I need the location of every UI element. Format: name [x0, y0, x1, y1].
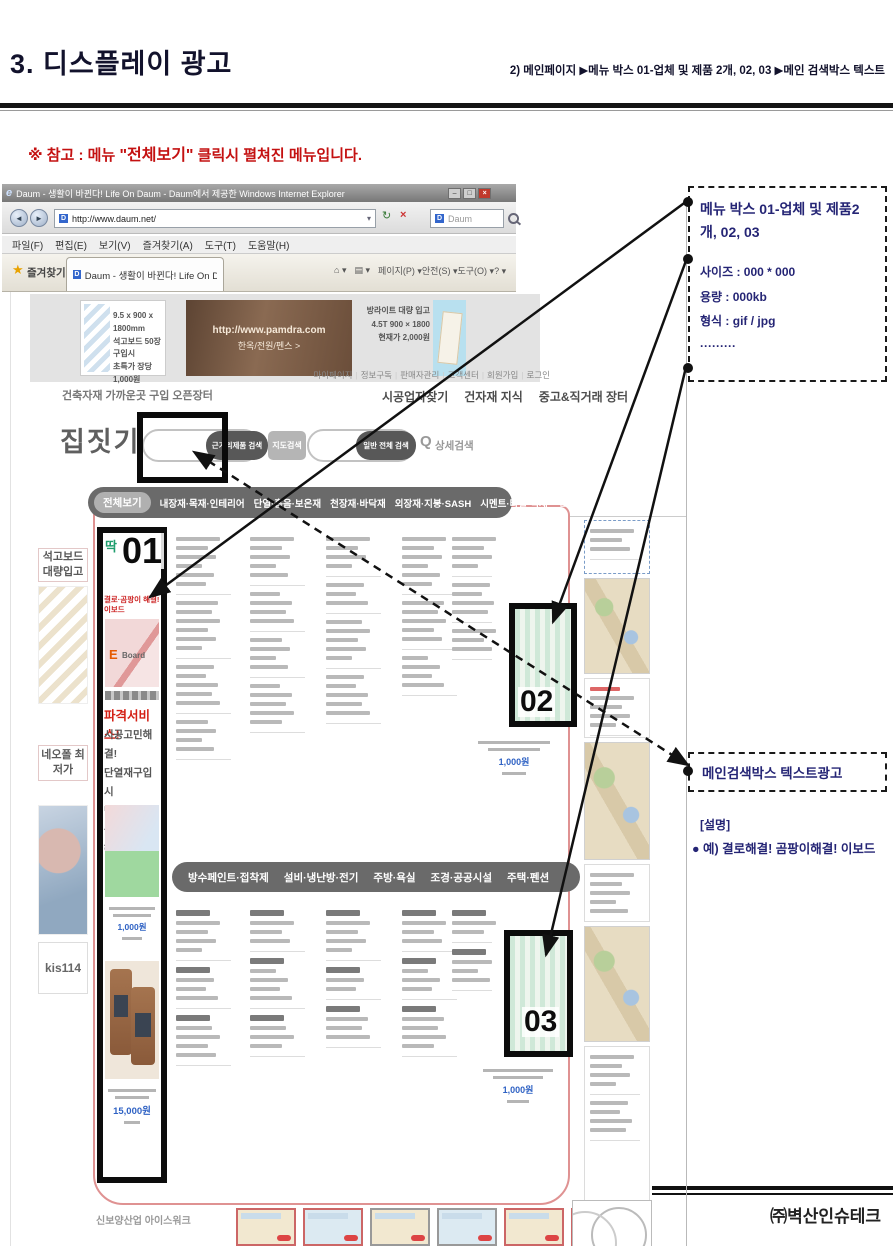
- menu-text-line: [402, 601, 444, 605]
- menu-text-line: [452, 592, 482, 596]
- minimize-button[interactable]: –: [448, 188, 461, 199]
- favorites-bar: ★ 즐겨찾기 D Daum - 생활이 바뀐다! Life On Daum ⌂ …: [2, 254, 516, 292]
- menu-text-line: [402, 958, 436, 964]
- magnifier-icon[interactable]: [508, 213, 519, 224]
- category-tab[interactable]: 전체보기: [94, 492, 151, 513]
- header-rule-thick: [0, 103, 893, 108]
- utility-link[interactable]: 고객센터: [448, 370, 479, 380]
- sticker-logo: 딱: [105, 536, 117, 555]
- window-title: Daum - 생활이 바뀐다! Life On Daum - Daum에서 제공…: [16, 187, 446, 200]
- menu-text-line: [402, 555, 442, 559]
- menu-text-line: [250, 573, 288, 577]
- column-divider: [176, 658, 231, 659]
- favorites-label[interactable]: 즐겨찾기: [27, 265, 66, 280]
- ad-slot-box-02: 02: [509, 603, 577, 727]
- menu-text-line: [590, 1128, 626, 1132]
- note-prefix: ※ 참고 : 메뉴: [28, 147, 119, 164]
- menu-text-line: [176, 930, 208, 934]
- menu-item[interactable]: 도구(T): [205, 237, 236, 252]
- forward-button[interactable]: ►: [30, 209, 48, 227]
- banner-ad-right-text[interactable]: 방라이트 대량 입고4.5T 900 × 1800현재가 2,000원: [360, 304, 430, 345]
- header-breadcrumb: 2) 메인페이지 ▶메뉴 박스 01-업체 및 제품 2개, 02, 03 ▶메…: [420, 62, 885, 78]
- reference-note: ※ 참고 : 메뉴 "전체보기" 클릭시 펼쳐진 메뉴입니다.: [28, 141, 362, 165]
- menu-text-line: [250, 910, 284, 916]
- menu-text-line: [590, 900, 616, 904]
- eboard-logo-image[interactable]: E Board: [105, 619, 159, 687]
- menu-text-line: [590, 1073, 630, 1077]
- command-item[interactable]: 페이지(P) ▾: [378, 266, 422, 276]
- menu-text-line: [326, 948, 352, 952]
- menu-text-line: [402, 910, 436, 916]
- stop-icon[interactable]: ×: [400, 209, 406, 221]
- category-tab[interactable]: 단열·흡음·보온재: [254, 496, 322, 510]
- menu-text-line: [250, 619, 294, 623]
- column-divider: [250, 585, 305, 586]
- category-tab[interactable]: 외장재·지붕·SASH: [395, 496, 471, 510]
- map-thumbnail-1[interactable]: [584, 578, 650, 674]
- tab-favicon: D: [73, 270, 81, 279]
- sidebar-ad-gypsum-image[interactable]: [38, 586, 88, 704]
- menu-text-line: [250, 665, 288, 669]
- column-divider: [326, 723, 381, 724]
- menu-text-line: [250, 1015, 284, 1021]
- banner-ad-text: 9.5 x 900 x 1800mm석고보드 50장 구입시초특가 장당 1,0…: [113, 310, 165, 387]
- menu-text-line: [590, 714, 630, 718]
- menu-text-line: [176, 674, 206, 678]
- menu-text-line: [590, 1082, 616, 1086]
- daum-search-icon: D: [435, 214, 444, 223]
- thumb-price-pill: [545, 1235, 559, 1241]
- map-search-button[interactable]: 지도검색: [268, 431, 306, 460]
- category-tab[interactable]: 주방·욕실: [373, 870, 415, 885]
- back-button[interactable]: ◄: [10, 209, 28, 227]
- annotation-box-menu: 메뉴 박스 01-업체 및 제품2개, 02, 03 사이즈 : 000 * 0…: [688, 186, 887, 382]
- sidebar-ad-gypsum[interactable]: 석고보드 대량입고: [38, 548, 88, 582]
- ad-slot-label-02: 02: [518, 687, 555, 717]
- nav-left-label: 건축자재 가까운곳 구입 오픈장터: [62, 387, 213, 403]
- menu-text-line: [176, 747, 214, 751]
- menu-text-line: [402, 637, 442, 641]
- menu-text-line: [176, 573, 214, 577]
- menu-text-line: [452, 601, 494, 605]
- menu-item[interactable]: 편집(E): [55, 237, 87, 252]
- ad-slot-box-03: 03: [504, 930, 573, 1057]
- nav-right-links: 시공업자찾기건자재 지식중고&직거래 장터: [382, 388, 628, 405]
- column-divider: [452, 990, 492, 991]
- product-price-2: 15,000원: [104, 1103, 160, 1117]
- menu-text-line: [452, 564, 478, 568]
- menu-text-line: [590, 909, 628, 913]
- menu-text-line: [326, 910, 360, 916]
- utility-link[interactable]: 마이페이지: [313, 370, 352, 380]
- bottom-ad-thumbnail[interactable]: [437, 1208, 497, 1246]
- column-divider: [452, 576, 492, 577]
- menu-text-line: [402, 674, 432, 678]
- menu-text-line: [402, 683, 444, 687]
- menu-text-line: [250, 656, 276, 660]
- product-image-1[interactable]: [105, 805, 159, 897]
- thumb-price-pill: [344, 1235, 358, 1241]
- category-tab[interactable]: 조경·공공시설: [431, 870, 492, 885]
- column-divider: [326, 1047, 381, 1048]
- utility-link[interactable]: 회원가입: [487, 370, 518, 380]
- menu-text-line: [590, 882, 622, 886]
- category-tab[interactable]: 설비·냉난방·전기: [284, 870, 359, 885]
- description-header: [설명]: [700, 816, 730, 833]
- menu-text-line: [176, 692, 212, 696]
- footer-rule-1: [652, 1186, 893, 1190]
- divider-strip: [105, 691, 159, 700]
- menu-text-line: [176, 996, 218, 1000]
- menu-text-line: [176, 628, 208, 632]
- thumb-title-bar: [509, 1213, 549, 1219]
- menu-text-line: [590, 891, 630, 895]
- bottom-ad-thumbnail[interactable]: [303, 1208, 363, 1246]
- ad-caption-03: 1,000원: [468, 1065, 568, 1107]
- right-column-text[interactable]: [584, 678, 650, 738]
- column-divider: [250, 732, 305, 733]
- menu-text-line: [250, 564, 276, 568]
- menu-item[interactable]: 보기(V): [99, 237, 131, 252]
- ad-slot-label-03: 03: [522, 1007, 559, 1037]
- menu-text-line: [250, 684, 280, 688]
- menu-text-line: [176, 939, 216, 943]
- menu-text-line: [326, 1026, 362, 1030]
- category-tab[interactable]: 방수페인트·접착제: [188, 870, 269, 885]
- sidebar-ad-neopol-image[interactable]: [38, 805, 88, 935]
- menu-text-line: [326, 675, 364, 679]
- menu-text-line: [326, 555, 366, 559]
- column-divider: [250, 1008, 305, 1009]
- menu-text-line: [176, 646, 202, 650]
- menu-text-line: [250, 939, 290, 943]
- menu-text-line: [590, 1064, 622, 1068]
- menu-text-line: [590, 705, 622, 709]
- note-highlight: "전체보기": [119, 147, 193, 164]
- nav-link[interactable]: 중고&직거래 장터: [539, 388, 628, 405]
- company-name: ㈜벽산인슈테크: [653, 1202, 881, 1227]
- note-suffix: 클릭시 펼쳐진 메뉴입니다.: [194, 147, 362, 164]
- document-page: 3. 디스플레이 광고 2) 메인페이지 ▶메뉴 박스 01-업체 및 제품 2…: [0, 0, 893, 1246]
- menu-text-line: [402, 665, 440, 669]
- menu-text-line: [402, 656, 428, 660]
- menu-text-line: [402, 582, 432, 586]
- product-caption-1: 1,000원: [104, 903, 160, 944]
- bottom-ad-thumbnail[interactable]: [504, 1208, 564, 1246]
- screenshot-right-edge: [686, 205, 687, 1246]
- ad-price-03: 1,000원: [468, 1083, 568, 1096]
- bottom-ad-thumbnail[interactable]: [370, 1208, 430, 1246]
- menu-text-line: [402, 978, 440, 982]
- menu-text-line: [326, 702, 362, 706]
- url-dropdown-icon[interactable]: ▾: [367, 214, 371, 223]
- annotation-specs: 사이즈 : 000 * 000 용량 : 000kb 형식 : gif / jp…: [700, 260, 875, 358]
- command-item[interactable]: 안전(S) ▾: [422, 266, 458, 276]
- menu-text-line: [590, 723, 616, 727]
- command-item[interactable]: 도구(O) ▾: [457, 266, 494, 276]
- menu-text-line: [326, 930, 358, 934]
- category-bar-1: 전체보기내장재·목재·인테리어단열·흡음·보온재천장재·바닥재외장재·지붕·SA…: [88, 487, 512, 518]
- utility-link[interactable]: 판매자관리: [400, 370, 439, 380]
- menu-text-line: [590, 1055, 634, 1059]
- callout-bullet-4: [683, 766, 693, 776]
- menu-text-line: [176, 910, 210, 916]
- menu-text-line: [176, 701, 220, 705]
- map-thumbnail-2[interactable]: [584, 742, 650, 860]
- menu-text-line: [326, 583, 364, 587]
- callout-bullet-3: [683, 363, 693, 373]
- banner-ad-center[interactable]: http://www.pamdra.com 한옥/전원/펜스 >: [186, 300, 352, 376]
- column-divider: [590, 559, 640, 560]
- description-example: ● 예) 결로해결! 곰팡이해결! 이보드: [692, 838, 875, 857]
- menu-text-line: [452, 647, 492, 651]
- menu-text-line: [176, 564, 202, 568]
- refresh-icon[interactable]: ↻: [382, 209, 391, 222]
- page-title: 3. 디스플레이 광고: [10, 42, 232, 81]
- menu-text-line: [250, 720, 282, 724]
- column-divider: [590, 1094, 640, 1095]
- annotation-title: 메뉴 박스 01-업체 및 제품2개, 02, 03: [700, 198, 875, 244]
- menu-text-line: [250, 969, 276, 973]
- thumb-price-pill: [411, 1235, 425, 1241]
- right-column-notice[interactable]: [584, 520, 650, 574]
- menu-item[interactable]: 즐겨찾기(A): [143, 237, 193, 252]
- menu-text-line: [176, 1026, 212, 1030]
- menu-text-line: [250, 647, 290, 651]
- menu-text-line: [250, 987, 280, 991]
- column-divider: [452, 942, 492, 943]
- callout-bullet-1: [683, 197, 693, 207]
- menu-text-line: [326, 939, 366, 943]
- command-item[interactable]: ? ▾: [494, 266, 506, 276]
- search-box-highlight-rect: [137, 412, 228, 483]
- menu-text-line: [326, 592, 356, 596]
- product-price-1: 1,000원: [104, 921, 160, 933]
- category-tab[interactable]: 시멘트·타일·석재: [480, 496, 548, 510]
- menu-text-line: [452, 960, 492, 964]
- column-divider: [250, 631, 305, 632]
- category-tab[interactable]: 주택·펜션: [507, 870, 549, 885]
- url-field[interactable]: D http://www.daum.net/ ▾: [54, 209, 376, 228]
- menu-text-line: [590, 1110, 620, 1114]
- column-divider: [402, 1056, 457, 1057]
- menu-text-line: [250, 921, 294, 925]
- thumb-title-bar: [241, 1213, 281, 1219]
- menu-text-line: [452, 921, 496, 925]
- feed-icon[interactable]: ▤ ▾: [354, 265, 370, 276]
- menu-text-line: [402, 1026, 438, 1030]
- column-divider: [326, 576, 381, 577]
- menu-text-column: [326, 532, 386, 730]
- menu-text-line: [402, 573, 440, 577]
- column-divider: [402, 594, 457, 595]
- category-tab[interactable]: 전국 판매자 찾기: [559, 497, 618, 509]
- sidebar-ad-kis114[interactable]: kis114: [38, 942, 88, 994]
- menu-text-line: [452, 629, 496, 633]
- menu-text-line: [176, 637, 216, 641]
- menu-text-line: [326, 684, 356, 688]
- column-divider: [250, 951, 305, 952]
- menu-text-line: [452, 583, 490, 587]
- menu-text-line: [402, 1035, 446, 1039]
- ie-icon: e: [6, 187, 12, 199]
- menu-text-line: [326, 564, 352, 568]
- menu-text-line: [176, 921, 220, 925]
- map-thumbnail-3[interactable]: [584, 926, 650, 1042]
- menu-text-line: [326, 620, 362, 624]
- menu-text-line: [176, 738, 202, 742]
- menu-text-line: [250, 546, 282, 550]
- menu-text-line: [326, 987, 356, 991]
- menu-item[interactable]: 도움말(H): [248, 237, 289, 252]
- menu-text-line: [402, 610, 438, 614]
- all-search-button[interactable]: 일반 전체 검색: [356, 431, 416, 460]
- menu-text-line: [452, 555, 492, 559]
- menu-text-line: [176, 610, 212, 614]
- menu-text-line: [176, 978, 214, 982]
- bottom-ad-label: 신보양산업 아이스워크: [96, 1212, 191, 1227]
- banner-url: http://www.pamdra.com: [213, 325, 326, 336]
- menu-text-line: [176, 720, 208, 724]
- menu-text-line: [402, 537, 446, 541]
- separator: |: [521, 370, 523, 380]
- column-divider: [452, 622, 492, 623]
- menu-text-line: [250, 601, 292, 605]
- menu-text-line: [452, 930, 484, 934]
- detail-search-label[interactable]: 상세검색: [435, 438, 474, 453]
- menu-text-line: [452, 537, 496, 541]
- url-text: http://www.daum.net/: [72, 214, 156, 224]
- menu-text-line: [452, 949, 486, 955]
- menu-text-line: [250, 1035, 294, 1039]
- right-column-text[interactable]: [584, 864, 650, 922]
- column-divider: [452, 659, 492, 660]
- menu-text-line: [326, 629, 370, 633]
- menu-text-line: [176, 683, 218, 687]
- menu-text-line: [176, 1053, 216, 1057]
- menu-text-line: [590, 529, 634, 533]
- column-divider: [326, 668, 381, 669]
- separator: |: [442, 370, 444, 380]
- favorites-star-icon[interactable]: ★: [12, 262, 24, 278]
- menu-text-line: [326, 546, 358, 550]
- menu-text-line: [250, 958, 284, 964]
- category-tab[interactable]: 내장재·목재·인테리어: [160, 496, 245, 510]
- menu-text-line: [402, 546, 434, 550]
- menu-item[interactable]: 파일(F): [12, 237, 43, 252]
- ad-caption-02: 1,000원: [462, 737, 566, 779]
- menu-text-line: [326, 647, 366, 651]
- menu-text-line: [250, 711, 294, 715]
- browser-tab[interactable]: D Daum - 생활이 바뀐다! Life On Daum: [66, 257, 224, 291]
- browser-title-bar: e Daum - 생활이 바뀐다! Life On Daum - Daum에서 …: [2, 184, 516, 202]
- menu-text-line: [176, 537, 220, 541]
- callout-bullet-2: [683, 254, 693, 264]
- maximize-button[interactable]: □: [463, 188, 476, 199]
- bottom-diagram-box: [572, 1200, 652, 1246]
- menu-text-line: [452, 910, 486, 916]
- menu-text-line: [176, 948, 202, 952]
- menu-text-line: [176, 1035, 220, 1039]
- menu-text-line: [402, 1006, 436, 1012]
- menu-text-line: [326, 601, 368, 605]
- column-divider: [176, 759, 231, 760]
- menu-text-column: [176, 532, 236, 766]
- column-divider: [402, 999, 457, 1000]
- thumb-title-bar: [442, 1213, 482, 1219]
- banner-ad-gypsum[interactable]: 9.5 x 900 x 1800mm석고보드 50장 구입시초특가 장당 1,0…: [80, 300, 166, 376]
- daum-favicon: D: [59, 214, 68, 223]
- ad-price-02: 1,000원: [462, 755, 566, 768]
- right-column-list[interactable]: [584, 1046, 650, 1204]
- browser-search-input[interactable]: D Daum: [430, 209, 504, 228]
- utility-link[interactable]: 정보구독: [361, 370, 392, 380]
- menu-text-line: [326, 537, 370, 541]
- column-divider: [402, 951, 457, 952]
- menu-text-column: [326, 905, 386, 1054]
- menu-text-column: [176, 905, 236, 1072]
- menu-text-line: [326, 711, 370, 715]
- column-divider: [250, 677, 305, 678]
- menu-text-line: [590, 873, 634, 877]
- menu-text-line: [452, 546, 484, 550]
- home-icon[interactable]: ⌂ ▾: [334, 265, 346, 276]
- column-divider: [176, 960, 231, 961]
- product-image-2[interactable]: [105, 961, 159, 1079]
- category-tab[interactable]: 천장재·바닥재: [330, 496, 386, 510]
- separator: |: [395, 370, 397, 380]
- menu-text-line: [402, 619, 446, 623]
- menu-text-column: [452, 532, 496, 666]
- column-divider: [590, 1140, 640, 1141]
- price-highlight-bar: [590, 687, 620, 691]
- menu-text-column: [250, 532, 310, 739]
- site-logo[interactable]: 집짓기: [60, 420, 141, 459]
- column-divider: [326, 999, 381, 1000]
- detail-search-icon[interactable]: Q: [420, 433, 432, 450]
- menu-text-line: [590, 1101, 628, 1105]
- gypsum-board-image: [84, 304, 110, 372]
- menu-text-line: [250, 693, 292, 697]
- utility-links: 마이페이지|정보구독|판매자관리|고객센터|회원가입|로그인: [300, 369, 550, 381]
- footer-rule-2: [652, 1193, 893, 1195]
- menu-text-column: [452, 905, 496, 997]
- ad-headline[interactable]: 결로·곰팡이 해결! 이보드: [104, 595, 160, 615]
- bottom-ad-thumbnail[interactable]: [236, 1208, 296, 1246]
- menu-text-line: [250, 1044, 282, 1048]
- menu-text-line: [326, 638, 358, 642]
- menu-text-line: [402, 628, 434, 632]
- nav-link[interactable]: 건자재 지식: [464, 388, 523, 405]
- menu-text-line: [176, 1015, 210, 1021]
- tab-title: Daum - 생활이 바뀐다! Life On Daum: [85, 268, 217, 282]
- column-divider: [176, 1065, 231, 1066]
- separator: |: [482, 370, 484, 380]
- menu-text-line: [402, 921, 446, 925]
- menu-text-line: [452, 978, 490, 982]
- menu-text-line: [176, 987, 206, 991]
- thumb-price-pill: [277, 1235, 291, 1241]
- column-divider: [176, 594, 231, 595]
- nav-link[interactable]: 시공업자찾기: [382, 388, 448, 405]
- menu-text-line: [590, 538, 622, 542]
- close-button[interactable]: ×: [478, 188, 491, 199]
- column-divider: [402, 695, 457, 696]
- utility-link[interactable]: 로그인: [527, 370, 550, 380]
- menu-text-line: [176, 619, 220, 623]
- sidebar-ad-neopol[interactable]: 네오폴 최저가: [38, 745, 88, 781]
- column-divider: [250, 1056, 305, 1057]
